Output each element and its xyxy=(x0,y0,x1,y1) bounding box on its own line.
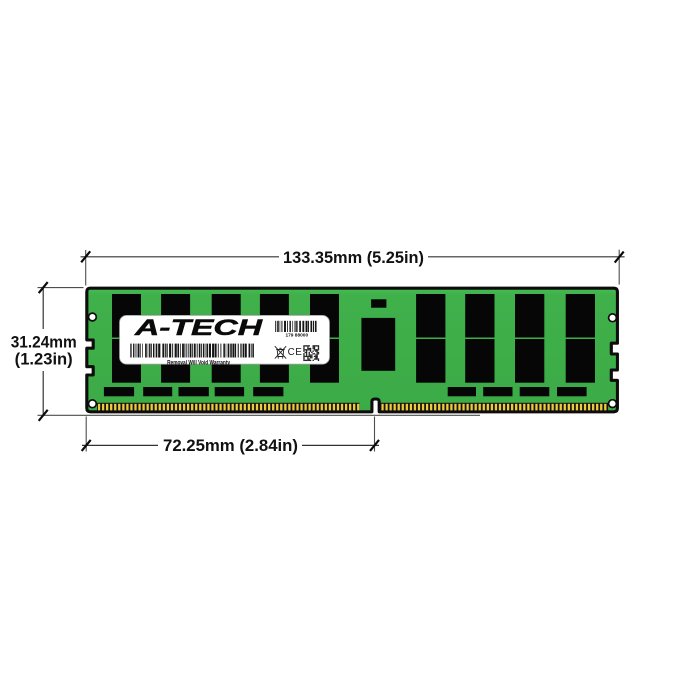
svg-text:CE: CE xyxy=(288,347,303,358)
svg-text:31.24mm: 31.24mm xyxy=(11,333,77,351)
svg-text:72.25mm (2.84in): 72.25mm (2.84in) xyxy=(163,437,298,455)
svg-text:179 88000: 179 88000 xyxy=(285,333,308,339)
svg-text:A-TECH: A-TECH xyxy=(133,315,263,340)
svg-text:Removal Will Void Warranty: Removal Will Void Warranty xyxy=(167,359,230,366)
svg-text:133.35mm (5.25in): 133.35mm (5.25in) xyxy=(283,249,424,267)
svg-text:(1.23in): (1.23in) xyxy=(15,351,73,369)
